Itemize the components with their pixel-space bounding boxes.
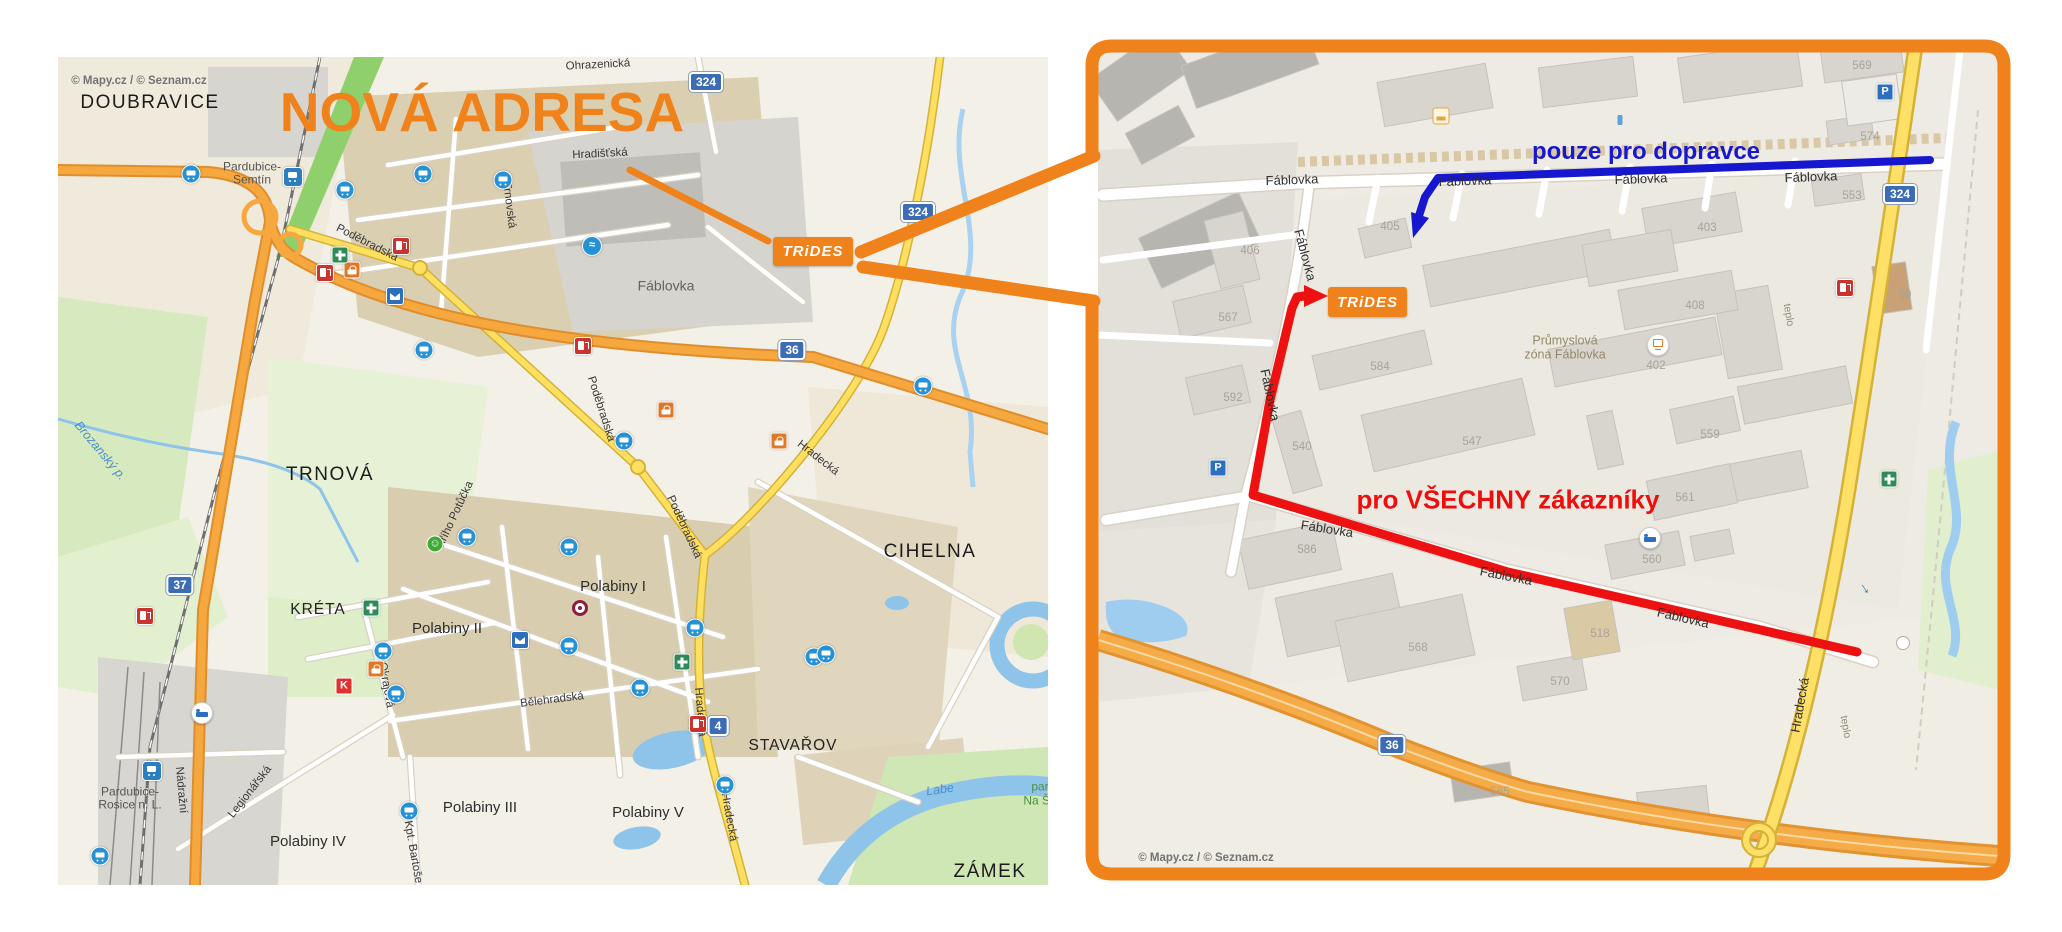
- park-label: Na Šp: [1023, 795, 1048, 808]
- station-label: Pardubice-: [101, 786, 159, 799]
- building-number: 405: [1380, 221, 1399, 233]
- roundabout-sign-icon: [1896, 636, 1910, 650]
- building-number: 518: [1590, 628, 1609, 640]
- bus-stop-icon: [374, 642, 393, 661]
- street-label: Nádražní: [173, 766, 189, 814]
- building-number: 586: [1297, 544, 1316, 556]
- bus-stop-icon: [560, 637, 579, 656]
- pharmacy-icon: [363, 600, 380, 617]
- bus-stop-icon: [560, 538, 579, 557]
- bus-stop-icon: [182, 165, 201, 184]
- building-number: 574: [1860, 131, 1879, 143]
- fuel-station-icon: [392, 237, 410, 255]
- road-sign-324: 324: [1883, 184, 1917, 204]
- building-number: 560: [1642, 554, 1661, 566]
- district-label: KRÉTA: [290, 602, 346, 618]
- fuel-station-icon: [316, 264, 334, 282]
- building-number: 406: [1240, 245, 1259, 257]
- smiley-icon: ☺: [427, 536, 444, 553]
- overview-label-layer: © Mapy.cz / © Seznam.czDOUBRAVICEPardubi…: [58, 57, 1048, 885]
- fuel-station-icon: [689, 715, 707, 733]
- road-sign-37: 37: [166, 575, 193, 595]
- building-number: 553: [1842, 190, 1861, 202]
- bus-stop-icon: [686, 619, 705, 638]
- building-number: 402: [1646, 360, 1665, 372]
- suburb-label: Polabiny II: [412, 621, 482, 637]
- stream-label: Brozanský p.: [72, 419, 129, 483]
- station-label: Rosice n. L.: [98, 799, 161, 812]
- building-number: 540: [1292, 441, 1311, 453]
- parking-icon: P: [1210, 460, 1227, 477]
- street-label: Fáblovka: [1656, 605, 1710, 630]
- hotel-icon: [191, 702, 213, 724]
- pool-icon: ≈: [582, 236, 602, 256]
- fuel-station-icon: [574, 337, 592, 355]
- building-number: 585: [1490, 786, 1509, 798]
- building-number: 570: [1550, 676, 1569, 688]
- train-station-icon: [142, 761, 162, 781]
- bus-stop-icon: [817, 645, 836, 664]
- train-station-icon: [283, 167, 303, 187]
- fuel-station-icon: [136, 607, 154, 625]
- building-number: 584: [1370, 361, 1389, 373]
- bus-stop-icon: [387, 685, 406, 704]
- street-label: Hradecká: [1788, 676, 1811, 733]
- street-label: teplo: [1781, 303, 1796, 327]
- post-office-icon: [386, 287, 404, 305]
- river-label: Labe: [925, 782, 954, 799]
- district-label: TRNOVÁ: [286, 465, 374, 485]
- detail-label-layer: FáblovkaFáblovkaFáblovkaFáblovkaFáblovka…: [1098, 50, 1999, 870]
- street-label: Fáblovka: [1265, 172, 1318, 187]
- supermarket-icon: K: [336, 678, 353, 695]
- post-office-icon: [511, 631, 529, 649]
- green-poi-icon: [1881, 471, 1898, 488]
- parking-icon: P: [1877, 84, 1894, 101]
- bus-stop-icon: [415, 341, 434, 360]
- street-label: Hradecká: [719, 792, 739, 843]
- road-sign-4: 4: [708, 716, 729, 736]
- poi-icon: [1618, 115, 1623, 125]
- building-number: 569: [1852, 60, 1871, 72]
- route-label-carriers: pouze pro dopravce: [1532, 138, 1760, 166]
- building-number: 568: [1408, 642, 1427, 654]
- building-number: 408: [1685, 300, 1704, 312]
- copyright: © Mapy.cz / © Seznam.cz: [71, 75, 207, 87]
- bus-stop-icon: [716, 776, 735, 795]
- shop-icon: [658, 402, 675, 419]
- street-label: Legionářská: [226, 764, 274, 821]
- bus-stop-icon: [336, 181, 355, 200]
- street-label: Fáblovka: [1292, 228, 1319, 282]
- building-number: 547: [1462, 436, 1481, 448]
- station-label: Pardubice-: [223, 161, 281, 174]
- street-label: Hradecká: [795, 438, 841, 478]
- street-label: Poděbradská: [664, 494, 704, 561]
- route-label-customers: pro VŠECHNY zákazníky: [1357, 485, 1660, 516]
- copyright: © Mapy.cz / © Seznam.cz: [1138, 852, 1274, 864]
- suburb-label: Polabiny III: [443, 800, 517, 816]
- zone-label: Průmyslová: [1532, 334, 1597, 347]
- detail-map: FáblovkaFáblovkaFáblovkaFáblovkaFáblovka…: [1098, 50, 1999, 870]
- zone-label: zóna Fáblovka: [1524, 348, 1605, 361]
- building-number: 559: [1700, 429, 1719, 441]
- building-number: 567: [1218, 312, 1237, 324]
- street-label: Kpt. Bartoše: [402, 820, 425, 884]
- pharmacy-icon: [674, 654, 691, 671]
- bus-stop-icon: [400, 802, 419, 821]
- bus-stop-icon: [615, 432, 634, 451]
- building-number: 403: [1697, 222, 1716, 234]
- bus-stop-icon: [494, 171, 513, 190]
- road-sign-324: 324: [901, 202, 935, 222]
- road-sign-36: 36: [778, 340, 805, 360]
- flow-arrow-icon: ↓: [1857, 580, 1873, 598]
- road-sign-324: 324: [689, 72, 723, 92]
- street-label: Poděbradská: [585, 375, 617, 443]
- shop-icon: [344, 262, 361, 279]
- road-sign-36: 36: [1378, 735, 1405, 755]
- street-label: Hradišťská: [572, 147, 628, 162]
- suburb-label: Polabiny I: [580, 579, 646, 595]
- street-label: Fáblovka: [1258, 368, 1282, 422]
- suburb-label: Polabiny V: [612, 805, 684, 821]
- fuel-station-icon: [1836, 279, 1854, 297]
- trides-logo-detail: TRiDES: [1328, 287, 1407, 317]
- street-label: Fáblovka: [1479, 564, 1533, 587]
- shop-icon: [368, 661, 385, 678]
- industry-icon: [1433, 108, 1450, 125]
- district-label: DOUBRAVICE: [80, 93, 219, 113]
- poi-target-icon: [572, 600, 588, 616]
- district-label: CIHELNA: [884, 542, 977, 562]
- street-label: Fáblovka: [1300, 518, 1354, 540]
- street-label: Ohrazenická: [565, 57, 630, 72]
- building-number: 69: [1899, 289, 1912, 301]
- bus-stop-icon: [458, 528, 477, 547]
- bus-stop-icon: [631, 679, 650, 698]
- district-label: ZÁMEK: [954, 862, 1027, 882]
- bus-stop-icon: [91, 847, 110, 866]
- overview-map: © Mapy.cz / © Seznam.czDOUBRAVICEPardubi…: [58, 57, 1048, 885]
- pharmacy-icon: [332, 247, 349, 264]
- district-label: STAVAŘOV: [749, 738, 838, 754]
- building-number: 561: [1675, 492, 1694, 504]
- street-label: teplo: [1838, 715, 1853, 739]
- building-number: 592: [1223, 392, 1242, 404]
- infographic-canvas: © Mapy.cz / © Seznam.czDOUBRAVICEPardubi…: [0, 0, 2062, 932]
- bus-stop-icon: [914, 377, 933, 396]
- map-title: NOVÁ ADRESA: [280, 80, 684, 144]
- trides-logo-overview: TRiDES: [773, 237, 853, 266]
- park-label: park: [1031, 781, 1048, 794]
- street-label: Fáblovka: [1438, 173, 1491, 188]
- area-label: Fáblovka: [638, 279, 695, 294]
- shop-icon: [771, 433, 788, 450]
- station-label: Semtín: [233, 174, 271, 187]
- suburb-label: Polabiny IV: [270, 834, 346, 850]
- bus-stop-icon: [414, 165, 433, 184]
- hotel-icon: [1639, 527, 1661, 549]
- street-label: Fáblovka: [1784, 169, 1837, 184]
- computer-store-icon: [1647, 334, 1669, 356]
- street-label: Fáblovka: [1614, 171, 1667, 186]
- street-label: Bělehradská: [520, 690, 585, 710]
